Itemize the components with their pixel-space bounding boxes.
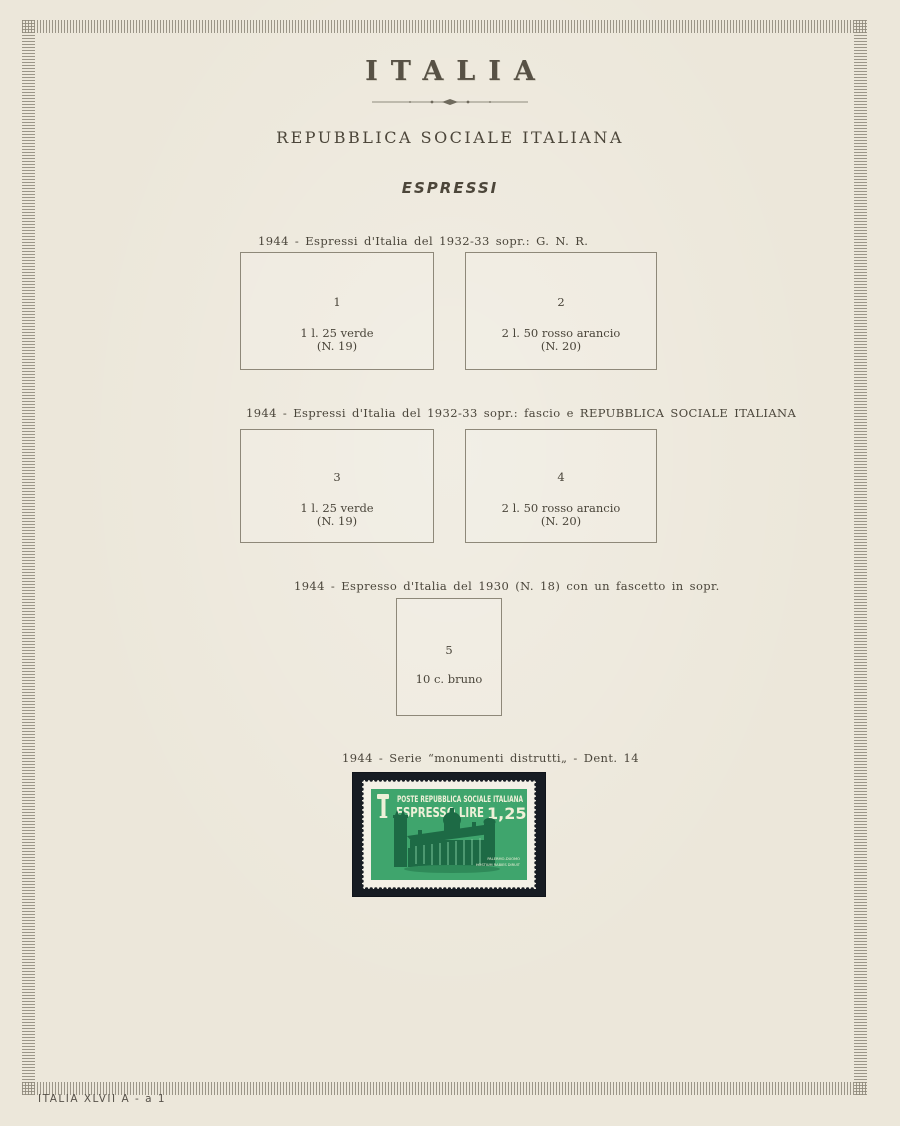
stamp-espresso-lire-1-25: POSTE REPUBBLICA SOCIALE ITALIANA ESPRES…	[352, 772, 546, 897]
slot-caption-line1: 2 l. 50 rosso arancio	[466, 502, 656, 515]
slot-caption-line1: 1 l. 25 verde	[241, 502, 433, 515]
section-1-heading: 1944 - Espressi d'Italia del 1932-33 sop…	[258, 234, 588, 248]
page-title: ITALIA	[0, 56, 900, 87]
slot-caption: 2 l. 50 rosso arancio (N. 20)	[466, 502, 656, 528]
stamp-caption-line1: PALERMO-DUOMO	[487, 857, 520, 861]
slot-number: 3	[241, 470, 433, 484]
title-flourish-ornament	[0, 92, 900, 111]
slot-caption: 2 l. 50 rosso arancio (N. 20)	[466, 327, 656, 353]
stamp-slot-5: 5 10 c. bruno	[396, 598, 502, 716]
slot-caption-line1: 10 c. bruno	[397, 673, 501, 686]
album-page: ITALIA REPUBBLICA SOCIALE ITALIANA ESPRE…	[0, 0, 900, 1126]
stamp-slot-1: 1 1 l. 25 verde (N. 19)	[240, 252, 434, 370]
slot-caption-line2: (N. 19)	[241, 515, 433, 528]
frame-border-top	[22, 20, 867, 33]
series-title: ESPRESSI	[0, 179, 900, 197]
stamp-mount: POSTE REPUBBLICA SOCIALE ITALIANA ESPRES…	[352, 772, 546, 897]
page-footer-code: ITALIA XLVII A - a 1	[38, 1093, 166, 1105]
section-4-heading: 1944 - Serie “monumenti distrutti„ - Den…	[342, 751, 639, 765]
stamp-espresso-line: ESPRESSO LIRE	[396, 806, 484, 821]
slot-caption-line2: (N. 20)	[466, 340, 656, 353]
section-2-heading: 1944 - Espressi d'Italia del 1932-33 sop…	[246, 406, 796, 420]
page-subtitle: REPUBBLICA SOCIALE ITALIANA	[0, 128, 900, 147]
section-3-heading: 1944 - Espresso d'Italia del 1930 (N. 18…	[294, 579, 720, 593]
slot-caption: 10 c. bruno	[397, 673, 501, 686]
slot-number: 4	[466, 470, 656, 484]
slot-caption-line2: (N. 19)	[241, 340, 433, 353]
slot-caption: 1 l. 25 verde (N. 19)	[241, 327, 433, 353]
slot-number: 1	[241, 295, 433, 309]
stamp-slot-3: 3 1 l. 25 verde (N. 19)	[240, 429, 434, 543]
slot-caption: 1 l. 25 verde (N. 19)	[241, 502, 433, 528]
slot-number: 5	[397, 643, 501, 657]
stamp-slot-4: 4 2 l. 50 rosso arancio (N. 20)	[465, 429, 657, 543]
stamp-slot-2: 2 2 l. 50 rosso arancio (N. 20)	[465, 252, 657, 370]
slot-number: 2	[466, 295, 656, 309]
stamp-caption-line2: HOSTIUM RABIES DIRUIT	[476, 863, 521, 867]
slot-caption-line2: (N. 20)	[466, 515, 656, 528]
